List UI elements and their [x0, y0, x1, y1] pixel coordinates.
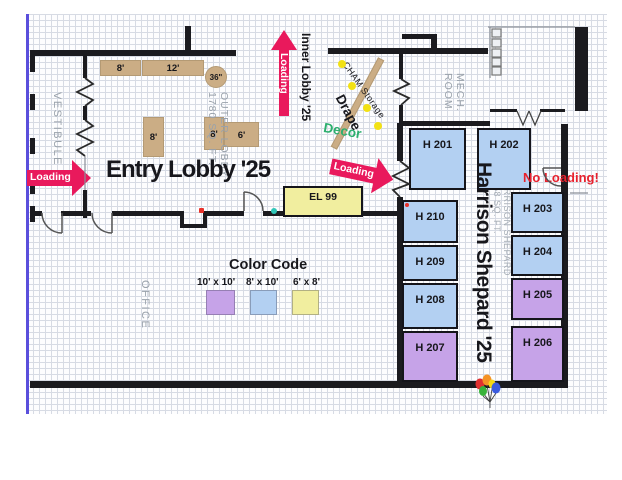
office-label: OFFICE [139, 280, 151, 329]
inner-lobby-title: Inner Lobby '25 [299, 33, 313, 121]
wall [575, 27, 588, 111]
legend-swatch-10x10 [206, 290, 235, 315]
wall [207, 211, 244, 216]
booth-h208-label: H 208 [415, 294, 444, 306]
booth-h204-label: H 204 [523, 246, 552, 258]
shelf-8ft-label: 8' [117, 63, 125, 74]
wall [328, 48, 488, 54]
booth-h204[interactable]: H 204 [511, 235, 564, 276]
legend-label-8x10: 8' x 10' [246, 277, 279, 288]
booth-el99[interactable]: EL 99 [283, 186, 363, 217]
wall [397, 123, 403, 161]
vestibule-label: VESTIBULE [51, 92, 63, 166]
legend-swatch-8x10 [250, 290, 277, 315]
wall [83, 56, 87, 78]
wall [431, 34, 437, 54]
booth-h207-label: H 207 [415, 342, 444, 354]
entry-lobby-title: Entry Lobby '25 [106, 156, 270, 184]
booth-h210[interactable]: H 210 [402, 200, 458, 243]
wall [30, 211, 42, 216]
loading-arrow-north: Loading [271, 30, 297, 116]
shelf-8ft: 8' [100, 60, 141, 76]
wall [112, 211, 180, 216]
booth-h201-label: H 201 [423, 139, 452, 151]
no-loading-label: No Loading! [523, 170, 599, 185]
booth-h205[interactable]: H 205 [511, 278, 564, 320]
wall [30, 56, 35, 72]
booth-h207[interactable]: H 207 [402, 331, 458, 382]
mech-room-label: MECH. ROOM [442, 73, 466, 112]
wall [399, 54, 403, 79]
booth-h203[interactable]: H 203 [511, 192, 564, 233]
wall [30, 381, 568, 388]
wall [30, 50, 236, 56]
loading-arrow-west-label: Loading [30, 171, 71, 183]
legend-title: Color Code [229, 257, 307, 273]
wall [399, 105, 403, 123]
shelf-12ft-label: 12' [167, 63, 180, 74]
booth-h206-label: H 206 [523, 337, 552, 349]
loading-arrow-north-label: Loading [278, 53, 290, 94]
harrison-shepard-title: Harrison Shepard '25 [471, 162, 495, 362]
wall [401, 121, 490, 126]
booth-h201[interactable]: H 201 [409, 128, 466, 190]
booth-h208[interactable]: H 208 [402, 283, 458, 329]
booth-h210-label: H 210 [415, 211, 444, 223]
wall [490, 109, 517, 112]
red-marker-dot [199, 208, 204, 213]
wall [185, 26, 191, 56]
teal-marker-dot [271, 208, 277, 214]
round-table-label: 36" [210, 73, 223, 82]
wall [83, 106, 87, 120]
wall [61, 211, 91, 216]
red-marker-dot [405, 203, 409, 207]
booth-h209-label: H 209 [415, 256, 444, 268]
property-boundary-line [26, 14, 29, 414]
floor-plan: 8' 12' 36" 8' 8' 6' VESTIBULE OUTER LOBB… [0, 0, 622, 480]
shelf-12ft: 12' [142, 60, 204, 76]
harrison-sqft-label: HARRISON SHEPARD 1458 SQ. FT. [492, 175, 512, 276]
t-table-6ft-label: 6' [238, 130, 246, 141]
wall [30, 138, 35, 154]
table-8ft-label: 8' [150, 132, 158, 143]
loading-arrow-west: Loading [27, 160, 91, 196]
legend-label-6x8: 6' x 8' [293, 277, 320, 288]
wall [540, 109, 565, 112]
wall [30, 94, 35, 110]
legend-swatch-6x8 [292, 290, 319, 315]
legend-label-10x10: 10' x 10' [197, 277, 235, 288]
table-8ft: 8' [143, 117, 164, 157]
booth-h203-label: H 203 [523, 203, 552, 215]
booth-h206[interactable]: H 206 [511, 326, 564, 382]
booth-el99-label: EL 99 [309, 191, 337, 203]
round-table-36in: 36" [205, 66, 227, 88]
booth-h209[interactable]: H 209 [402, 245, 458, 281]
booth-h205-label: H 205 [523, 289, 552, 301]
booth-h202-label: H 202 [489, 139, 518, 151]
